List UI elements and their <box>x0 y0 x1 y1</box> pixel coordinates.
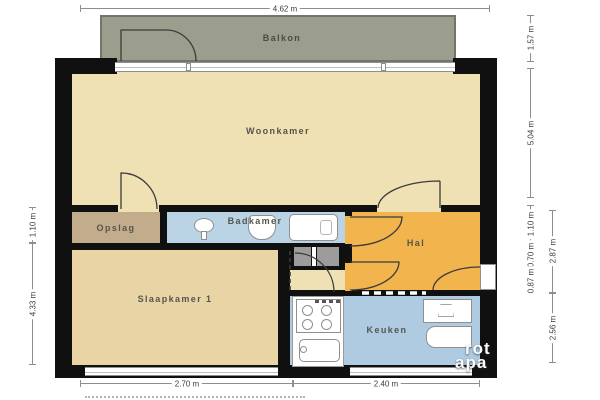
tap-icon <box>300 346 307 353</box>
window-mullion <box>381 63 386 71</box>
label-woonkamer: Woonkamer <box>246 126 310 136</box>
closet-right <box>317 247 339 266</box>
closet-divider <box>312 247 316 266</box>
label-opslag: Opslag <box>97 223 136 233</box>
window-balcony <box>115 62 455 72</box>
label-balkon: Balkon <box>263 33 301 43</box>
wall-left <box>55 58 72 378</box>
stove-knob-icon <box>329 300 333 303</box>
label-hal: Hal <box>407 238 425 248</box>
watermark-line2: apa <box>455 356 500 370</box>
dim-label-top: 4.62 m <box>270 5 300 14</box>
dim-label-bottom-right: 2.40 m <box>371 380 401 389</box>
cropped-caption-line <box>85 396 305 398</box>
dim-label-right-hal-total: 2.87 m <box>549 236 558 266</box>
dim-label-right-entry: 0.87 m <box>527 266 536 296</box>
label-badkamer: Badkamer <box>228 216 283 226</box>
front-door-leaf <box>480 264 496 290</box>
stove-knob-icon <box>336 300 340 303</box>
burner-icon <box>321 319 332 330</box>
stove-icon <box>296 299 341 333</box>
dim-label-right-balcony: 1.57 m <box>527 23 536 53</box>
stove-knob-icon <box>315 300 319 303</box>
stove-knob-icon <box>322 300 326 303</box>
dim-label-right-keuken: 2.56 m <box>549 313 558 343</box>
opening-opslag-door <box>118 205 159 212</box>
dim-label-left-upper: 1.10 m <box>29 210 38 240</box>
appliance-sink-icon <box>438 304 454 317</box>
floorplan: Balkon Woonkamer Opslag Badkamer Hal Sla… <box>0 0 600 400</box>
room-slaapkamer <box>72 250 278 367</box>
opening-hal-door <box>377 205 441 212</box>
burner-icon <box>302 305 313 316</box>
window-slaapkamer <box>85 367 278 376</box>
label-slaapkamer: Slaapkamer 1 <box>138 294 213 304</box>
wall-top-left <box>55 58 117 74</box>
dim-label-right-badkamer: 1.10 m <box>527 209 536 239</box>
dim-label-right-woonkamer: 5.04 m <box>527 118 536 148</box>
window-mullion <box>186 63 191 71</box>
watermark: rot apa <box>455 342 500 374</box>
burner-icon <box>302 319 313 330</box>
washbasin-pedestal-icon <box>201 231 207 240</box>
room-woonkamer <box>72 72 480 205</box>
bathtub-drain-icon <box>320 220 332 235</box>
window-keuken <box>350 367 472 376</box>
wall-right <box>480 58 497 378</box>
opening-passage-door <box>345 263 352 291</box>
dim-label-bottom-left: 2.70 m <box>172 380 202 389</box>
burner-icon <box>321 305 332 316</box>
wall-top-right <box>453 58 497 74</box>
room-hal <box>350 212 480 290</box>
dim-label-left-lower: 4.33 m <box>29 289 38 319</box>
opening-badkamer-door <box>345 216 352 244</box>
label-keuken: Keuken <box>367 325 408 335</box>
closet-left <box>294 247 311 266</box>
